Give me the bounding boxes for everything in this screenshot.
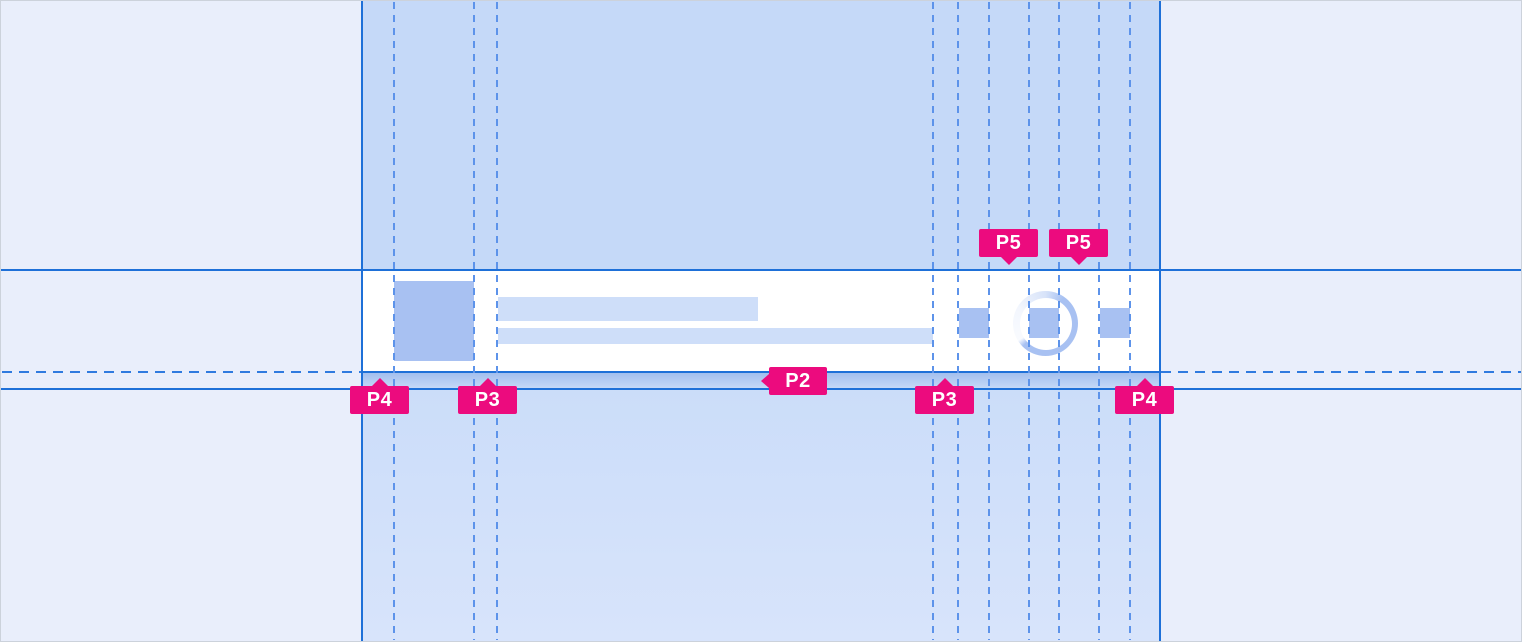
guide-dashed-vertical-icon3-right	[1129, 2, 1131, 640]
icon-placeholder-square-3	[1100, 308, 1130, 338]
guide-dashed-vertical-avatar-left	[393, 2, 395, 640]
icon-placeholder-square-1	[959, 308, 989, 338]
guide-solid-vertical-left-edge	[361, 1, 363, 641]
guide-dashed-vertical-text-right	[932, 2, 934, 640]
guide-dashed-vertical-icon1-left	[957, 2, 959, 640]
spacing-tag-p2-row-gap: P2	[769, 367, 827, 395]
component-column-band-top	[362, 1, 1160, 270]
guide-solid-horizontal-row-top	[1, 269, 1522, 271]
guide-dashed-vertical-text-left	[496, 2, 498, 640]
guide-dashed-horizontal-right	[1161, 371, 1522, 373]
spacing-tag-p5-icon-gap-2: P5	[1049, 229, 1108, 257]
guide-dashed-horizontal-left	[2, 371, 361, 373]
icon-placeholder-square-2	[1029, 308, 1059, 338]
spacing-redline-spec: P5 P5 P2 P4 P3 P3 P4	[0, 0, 1522, 642]
guide-dashed-vertical-icon2-right	[1058, 2, 1060, 640]
spacing-tag-p3-avatar-text-gap: P3	[458, 386, 517, 414]
guide-dashed-vertical-avatar-right	[473, 2, 475, 640]
guide-dashed-vertical-icon1-right	[988, 2, 990, 640]
guide-dashed-vertical-icon2-left	[1028, 2, 1030, 640]
guide-solid-vertical-right-edge	[1159, 1, 1161, 641]
spacing-tag-p4-left-padding: P4	[350, 386, 409, 414]
spacing-tag-p3-text-icon-gap: P3	[915, 386, 974, 414]
spacing-tag-p4-right-padding: P4	[1115, 386, 1174, 414]
guide-dashed-vertical-icon3-left	[1098, 2, 1100, 640]
component-column-band-bottom	[362, 389, 1160, 642]
spacing-tag-p5-icon-gap-1: P5	[979, 229, 1038, 257]
guide-solid-horizontal-next-row	[1, 388, 1522, 390]
guide-solid-horizontal-row-bottom	[362, 371, 1160, 373]
title-line-placeholder	[498, 297, 758, 321]
subtitle-line-placeholder	[498, 328, 933, 344]
avatar-placeholder	[394, 281, 474, 361]
